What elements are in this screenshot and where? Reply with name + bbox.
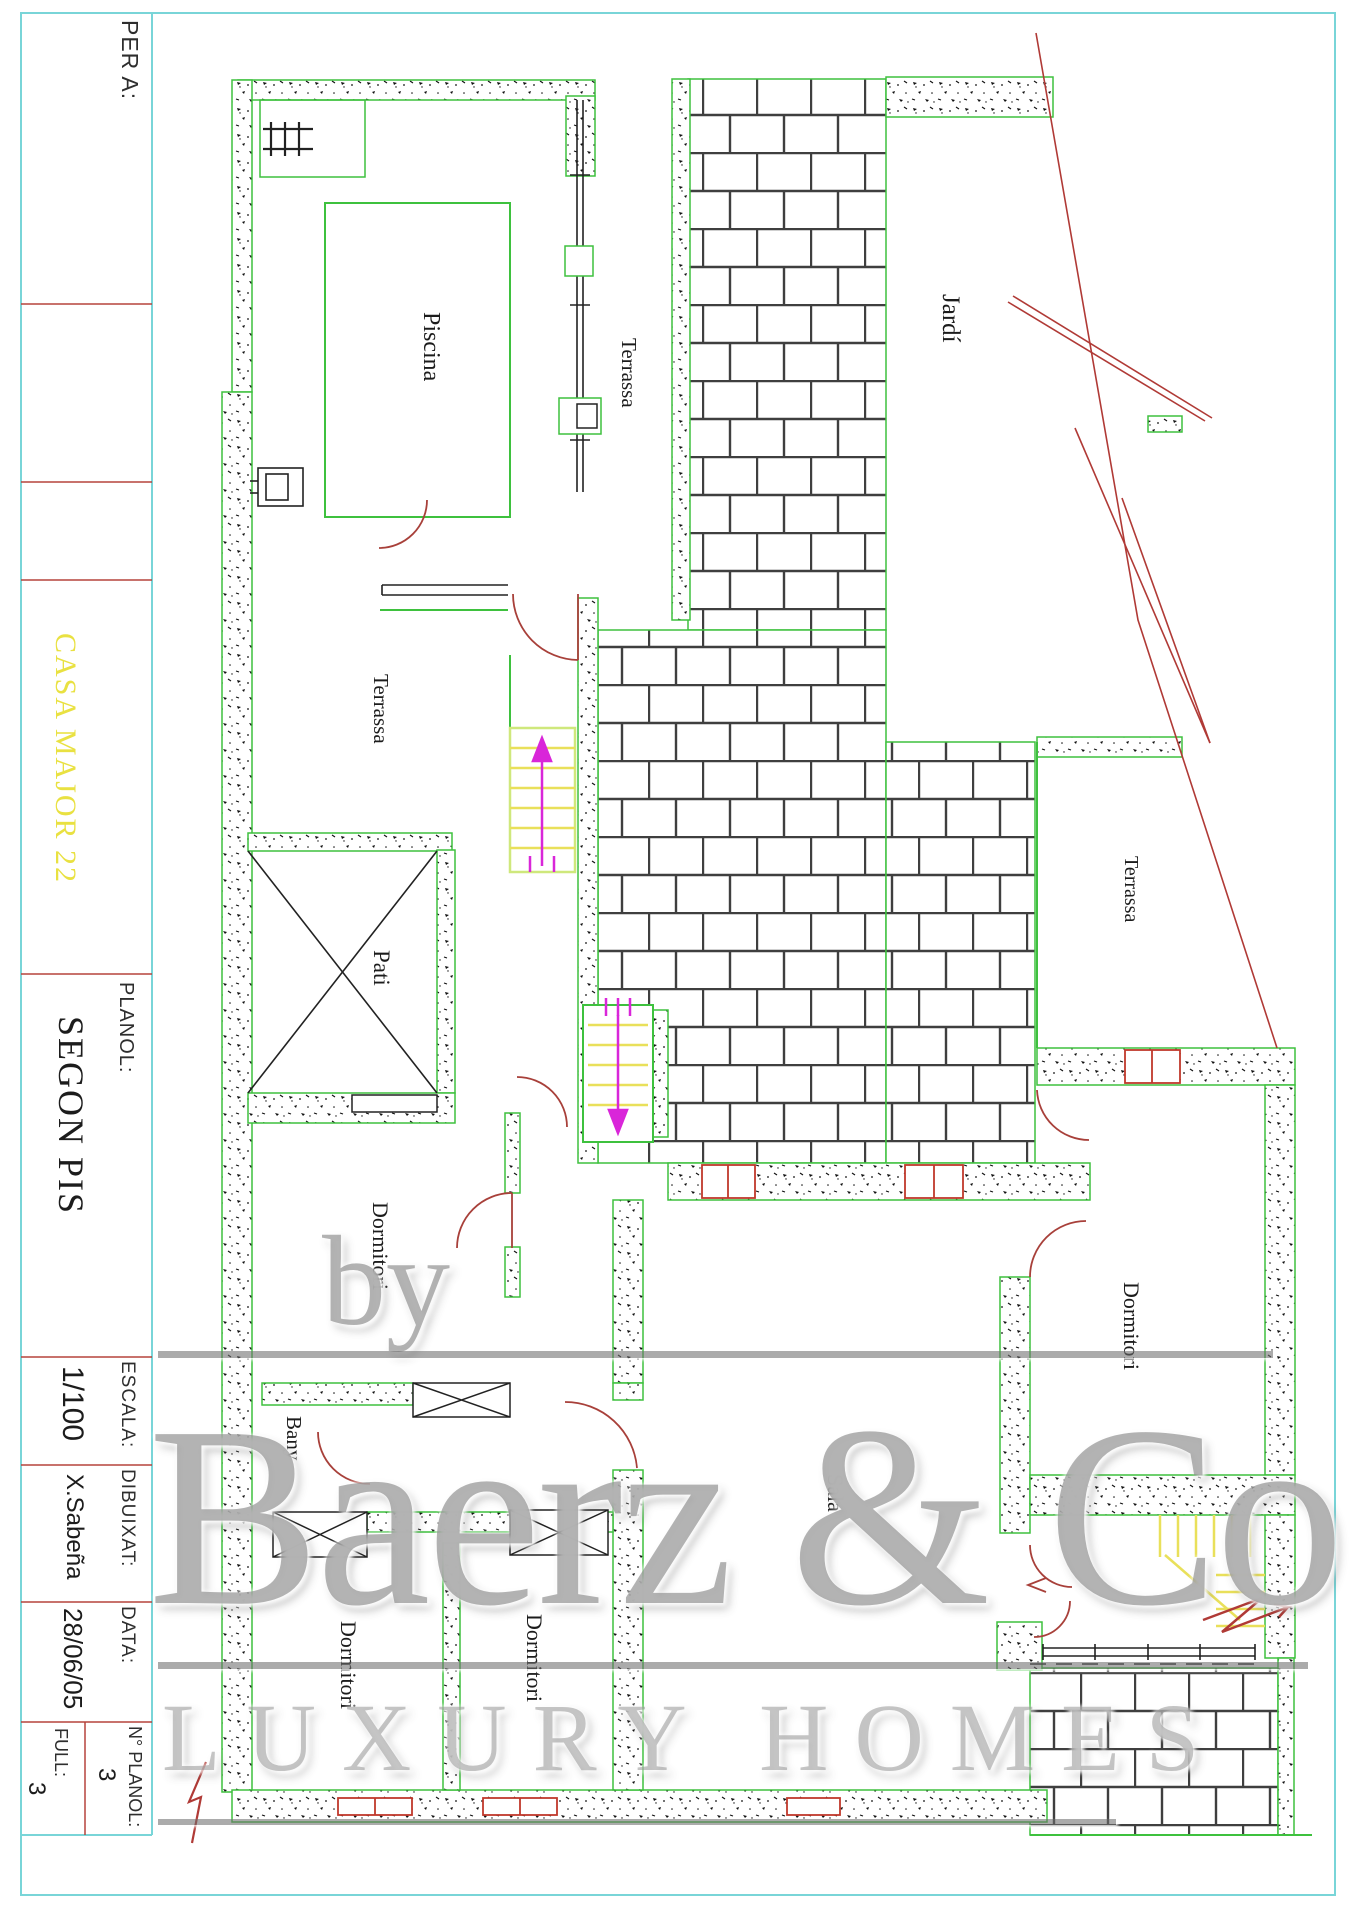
watermark-by: by	[322, 1208, 450, 1355]
room-label-terrassa-mid: Terrassa	[368, 674, 393, 744]
date-value: 28/06/05	[57, 1608, 88, 1709]
drawing-sheet: Piscina Terrassa Jardí Terrassa Pati Ter…	[0, 0, 1357, 1920]
scale-label: ESCALA:	[116, 1361, 138, 1448]
pati-cross	[248, 851, 437, 1093]
watermark-bar-bottom	[158, 1819, 1116, 1825]
drawn-by-value: X.Sabeña	[60, 1474, 88, 1579]
watermark-bar-top	[158, 1351, 1273, 1358]
watermark-tagline: LUXURY HOMES	[162, 1682, 1225, 1793]
sheet-label: FULL:	[50, 1728, 71, 1777]
drawn-by-label: DIBUIXAT:	[116, 1469, 138, 1567]
sheet-value: 3	[22, 1782, 50, 1795]
client-label: PER A:	[116, 20, 143, 100]
room-label-pati: Pati	[368, 950, 394, 986]
plan-label: PLANOL:	[114, 982, 137, 1073]
room-label-jardi: Jardí	[936, 294, 964, 343]
watermark-brand: Baerz & Co	[148, 1368, 1340, 1665]
scale-value: 1/100	[55, 1366, 89, 1441]
plan-number-value: 3	[92, 1768, 120, 1781]
room-label-terrassa-right: Terrassa	[1119, 856, 1142, 922]
stairs-up	[510, 728, 575, 872]
railing-posts	[559, 246, 601, 434]
room-label-piscina: Piscina	[417, 312, 444, 381]
date-label: DATA:	[116, 1606, 138, 1664]
room-label-terrassa-pool: Terrassa	[616, 338, 641, 408]
plan-number-label: N° PLANOL:	[124, 1726, 145, 1827]
pool-ladder-icon	[263, 122, 313, 156]
plan-name: SEGON PIS	[50, 1016, 92, 1215]
watermark-bar-mid	[158, 1662, 1308, 1669]
project-name: CASA MAJOR 22	[48, 633, 82, 884]
